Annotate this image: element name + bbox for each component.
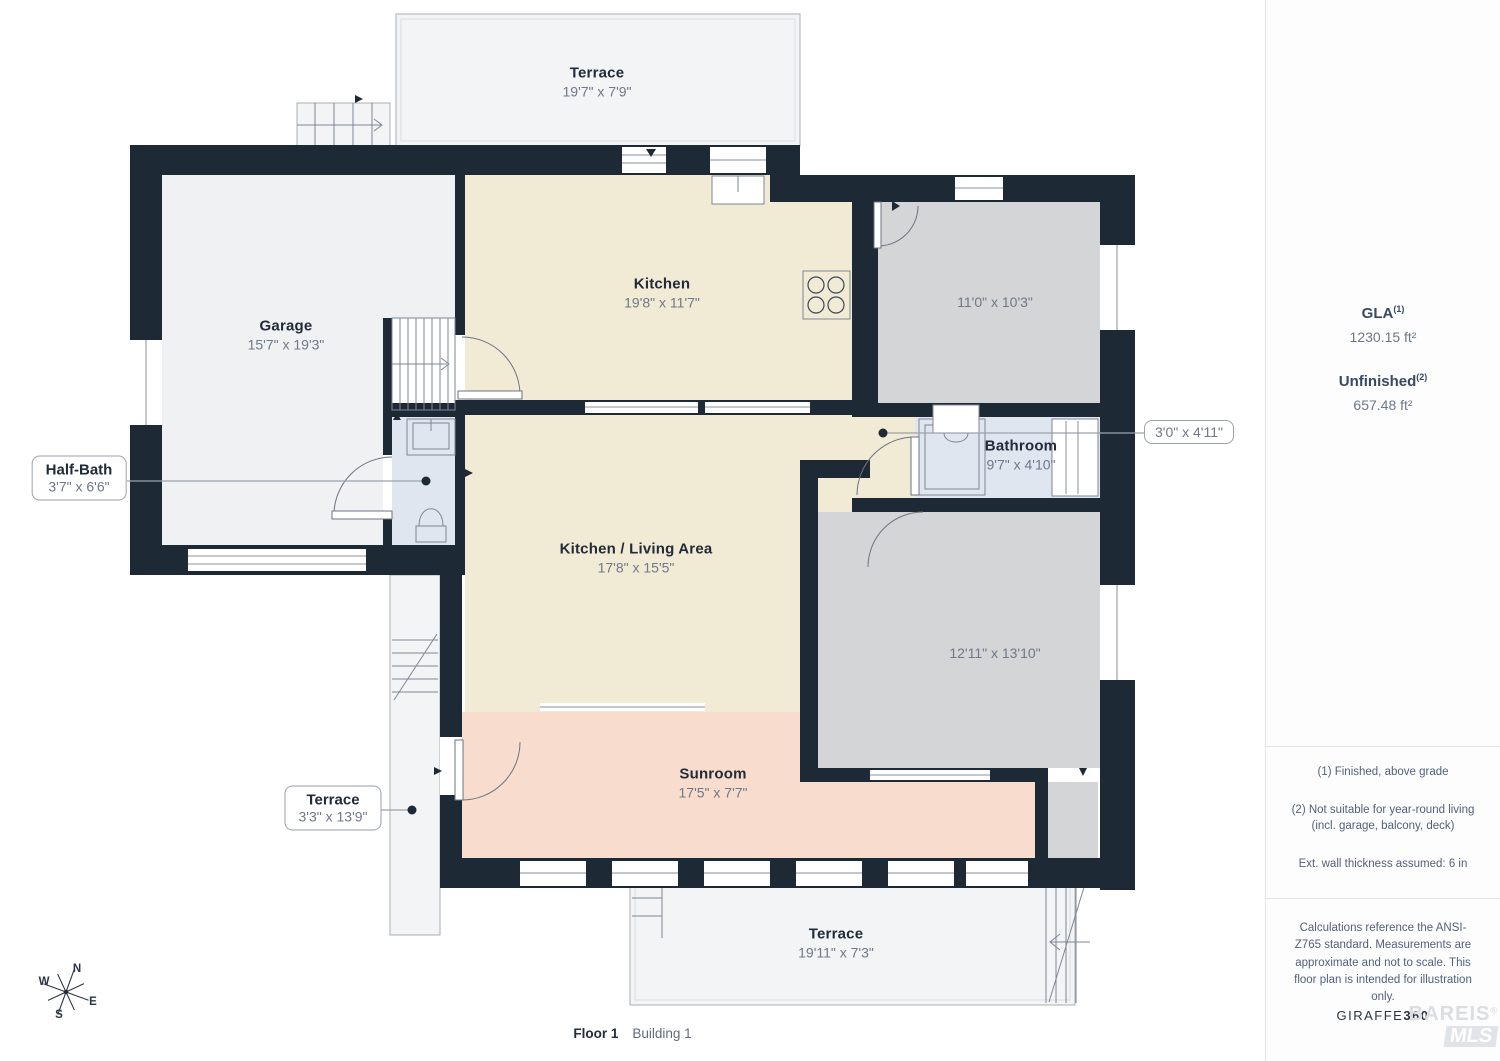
room-label-terrace-top: Terrace 19'7" x 7'9" xyxy=(563,65,632,100)
room-label-bottom-right: 12'11" x 13'10" xyxy=(949,643,1040,661)
floor-label: Floor 1 xyxy=(573,1026,618,1041)
hallway-area xyxy=(852,412,915,498)
room-label-terrace-bottom: Terrace 19'11" x 7'3" xyxy=(798,926,874,961)
callout-half-bath: Half-Bath 3'7" x 6'6" xyxy=(32,456,127,501)
watermark-line1: BAREIS xyxy=(1409,1003,1491,1025)
room-name: Kitchen / Living Area xyxy=(560,541,713,558)
terrace-top-stairs-icon xyxy=(297,103,390,146)
room-label-bathroom: Bathroom 9'7" x 4'10" xyxy=(985,438,1057,473)
sidebar-divider xyxy=(1266,746,1500,747)
callout-dims: 3'0" x 4'11" xyxy=(1155,424,1223,440)
closet-icon xyxy=(1052,419,1098,496)
compass-north-label: N xyxy=(73,963,81,975)
callout-dims: 3'3" x 13'9" xyxy=(299,809,368,825)
alcove-area xyxy=(1048,782,1098,858)
room-dims: 11'0" x 10'3" xyxy=(957,294,1033,310)
callout-dims: 3'7" x 6'6" xyxy=(46,479,113,495)
callout-closet: 3'0" x 4'11" xyxy=(1144,420,1234,444)
compass-south-label: S xyxy=(55,1009,63,1021)
gla-value: 1230.15 ft² xyxy=(1266,329,1500,345)
room-dims: 19'7" x 7'9" xyxy=(563,84,632,100)
callout-name: Terrace xyxy=(299,792,368,809)
room-dims: 19'8" x 11'7" xyxy=(624,295,700,311)
room-name: Garage xyxy=(248,318,325,335)
kitchen-living-room-area xyxy=(465,175,852,712)
footnotes: (1) Finished, above grade (2) Not suitab… xyxy=(1284,764,1482,894)
room-label-kitchen-living: Kitchen / Living Area 17'8" x 15'5" xyxy=(560,541,713,576)
room-dims: 17'5" x 7'7" xyxy=(679,785,748,801)
room-label-sunroom: Sunroom 17'5" x 7'7" xyxy=(679,766,748,801)
callout-terrace-left: Terrace 3'3" x 13'9" xyxy=(285,786,382,831)
callout-name: Half-Bath xyxy=(46,462,113,479)
footnote-1: (1) Finished, above grade xyxy=(1284,764,1482,781)
room-dims: 17'8" x 15'5" xyxy=(560,560,713,576)
room-name: Terrace xyxy=(563,65,632,82)
gla-footnote-marker: (1) xyxy=(1393,304,1404,314)
floor-plan-page: Terrace 19'7" x 7'9" Garage 15'7" x 19'3… xyxy=(0,0,1500,1061)
compass-west-label: W xyxy=(39,976,50,988)
disclaimer-text: Calculations reference the ANSI-Z765 sta… xyxy=(1292,920,1474,1006)
compass-icon xyxy=(35,961,97,1023)
room-dims: 12'11" x 13'10" xyxy=(949,645,1040,661)
unfinished-value: 657.48 ft² xyxy=(1266,397,1500,413)
room-dims: 9'7" x 4'10" xyxy=(985,457,1057,473)
logo-part1: GIRAFFE xyxy=(1336,1008,1403,1023)
compass-east-label: E xyxy=(89,996,97,1008)
room-name: Terrace xyxy=(798,926,874,943)
unfinished-footnote-marker: (2) xyxy=(1416,372,1427,382)
kitchen-sink-icon xyxy=(712,176,764,204)
stairs-icon xyxy=(392,318,455,410)
room-name: Sunroom xyxy=(679,766,748,783)
footer: Floor 1Building 1 xyxy=(0,1026,1265,1041)
room-name: Bathroom xyxy=(985,438,1057,455)
unfinished-label: Unfinished(2) xyxy=(1266,372,1500,390)
bareis-mls-watermark: BAREIS® MLS xyxy=(1409,1004,1497,1047)
footnote-3: Ext. wall thickness assumed: 6 in xyxy=(1284,856,1482,873)
room-label-kitchen: Kitchen 19'8" x 11'7" xyxy=(624,276,700,311)
info-sidebar: GLA(1) 1230.15 ft² Unfinished(2) 657.48 … xyxy=(1265,0,1500,1061)
room-name: Kitchen xyxy=(624,276,700,293)
watermark-line2: MLS xyxy=(1443,1026,1498,1047)
room-dims: 19'11" x 7'3" xyxy=(798,945,874,961)
building-label: Building 1 xyxy=(632,1026,691,1041)
sidebar-divider xyxy=(1266,898,1500,899)
footnote-2: (2) Not suitable for year-round living (… xyxy=(1284,802,1482,835)
registered-mark: ® xyxy=(1490,1006,1497,1016)
room-bottom-right-area xyxy=(818,512,1100,768)
area-stats: GLA(1) 1230.15 ft² Unfinished(2) 657.48 … xyxy=(1266,304,1500,440)
room-label-top-right: 11'0" x 10'3" xyxy=(957,292,1033,310)
terrace-left-area xyxy=(390,575,440,935)
room-dims: 15'7" x 19'3" xyxy=(248,337,325,353)
room-label-garage: Garage 15'7" x 19'3" xyxy=(248,318,325,353)
gla-label: GLA(1) xyxy=(1266,304,1500,322)
